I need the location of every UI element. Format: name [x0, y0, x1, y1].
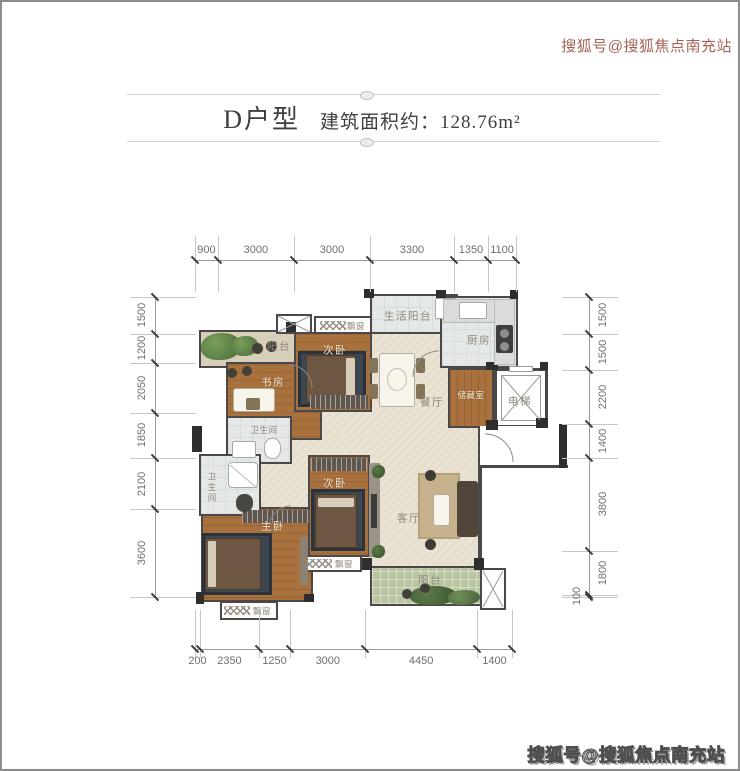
dimension-mark	[195, 649, 512, 650]
pillow-icon	[346, 358, 355, 400]
wardrobe-icon	[311, 458, 367, 471]
dimension-label: 3300	[390, 244, 434, 256]
header-divider-bottom	[127, 141, 660, 142]
dimension-label: 1850	[136, 413, 148, 457]
elevator-door	[509, 366, 533, 372]
header-divider-top	[127, 94, 660, 95]
label-bath1: 卫生间	[250, 424, 277, 436]
dimension-mark	[130, 509, 196, 510]
wall-pier	[304, 594, 314, 602]
dimension-label: 3600	[136, 531, 148, 575]
label-bay-bottom: 飘窗	[253, 605, 271, 617]
label-storage: 储藏室	[457, 389, 484, 401]
ac-platform-box	[480, 568, 506, 610]
dimension-label: 2200	[597, 375, 609, 419]
wall-pier	[536, 418, 548, 428]
wall-pier	[486, 420, 498, 430]
coffee-table-icon	[433, 494, 450, 526]
plant-pot-icon	[227, 368, 237, 378]
dimension-label: 3000	[234, 244, 278, 256]
chair-icon	[369, 384, 378, 399]
toilet-icon	[236, 494, 253, 512]
dimension-mark	[294, 236, 295, 292]
dimension-label: 3000	[306, 655, 350, 667]
wall-pier	[540, 362, 548, 370]
plant-icon	[372, 465, 385, 478]
plant-pot-icon	[252, 343, 263, 354]
wall-pier	[362, 558, 372, 570]
dimension-label: 1250	[253, 655, 297, 667]
label-dining: 餐厅	[420, 395, 444, 410]
label-bay-mid: 飘窗	[335, 558, 353, 570]
dimension-label: 1400	[597, 419, 609, 463]
dimension-mark	[130, 458, 196, 459]
page-title: D户型建筑面积约：128.76m²	[2, 99, 740, 136]
side-table-icon	[425, 539, 436, 550]
dimension-mark	[370, 236, 371, 292]
entry-hall	[480, 426, 568, 468]
wardrobe-icon	[310, 395, 368, 409]
dimension-label: 2050	[136, 366, 148, 410]
label-study: 书房	[261, 375, 285, 390]
plant-icon	[448, 590, 480, 605]
unit-type-label: D户型	[223, 105, 300, 134]
label-living: 客厅	[397, 511, 421, 526]
dimension-label: 900	[184, 244, 228, 256]
label-service-balcony: 生活阳台	[384, 309, 432, 324]
pillow-icon	[208, 541, 216, 587]
label-kitchen: 厨房	[467, 333, 491, 348]
washbasin-icon	[232, 441, 256, 458]
dimension-label: 3800	[597, 482, 609, 526]
wall-pier	[364, 289, 374, 298]
bay-ornament-icon	[306, 559, 332, 568]
label-elevator: 电梯	[508, 394, 532, 409]
wall-pier	[192, 426, 202, 452]
area-label: 建筑面积约：128.76m²	[320, 112, 521, 133]
wall-pier	[559, 424, 567, 468]
label-bay-top: 飘窗	[347, 320, 365, 332]
side-table-icon	[425, 470, 436, 481]
dimension-mark	[155, 297, 156, 597]
dimension-label: 2350	[207, 655, 251, 667]
tv-icon	[371, 494, 377, 528]
chair-icon	[369, 358, 378, 373]
label-bath2: 卫生间	[206, 472, 218, 504]
floorplan-page: D户型建筑面积约：128.76m² 搜狐号@搜狐焦点南充站	[0, 0, 740, 771]
label-balcony-bottom: 阳台	[418, 573, 442, 588]
watermark-bottom-right: 搜狐号@搜狐焦点南充站	[527, 742, 725, 767]
burner-icon	[500, 342, 509, 351]
table-centerpiece-icon	[387, 368, 407, 391]
label-bedroom-mid: 次卧	[323, 476, 347, 491]
chair-icon	[416, 358, 425, 373]
chair-icon	[246, 398, 260, 410]
wall-pier	[474, 558, 484, 570]
dimension-label: 4450	[399, 655, 443, 667]
plant-icon	[372, 545, 385, 558]
label-balcony-top: 阳台	[267, 339, 291, 354]
sink-icon	[459, 302, 487, 319]
wall-pier	[286, 322, 296, 332]
shower-icon	[228, 462, 258, 488]
plant-pot-icon	[402, 589, 412, 599]
dimension-label: 1500	[597, 330, 609, 374]
sofa-icon	[457, 481, 478, 537]
dimension-label: 3000	[310, 244, 354, 256]
plant-pot-icon	[242, 366, 252, 376]
bay-ornament-icon	[224, 606, 250, 615]
burner-icon	[500, 329, 509, 338]
wall-pier	[436, 290, 446, 298]
dimension-label: 1400	[472, 655, 516, 667]
dimension-mark	[195, 260, 516, 261]
bay-ornament-icon	[320, 321, 346, 330]
divider-ellipse-icon	[360, 138, 374, 147]
watermark-top-right: 搜狐号@搜狐焦点南充站	[561, 35, 732, 56]
dimension-mark	[130, 597, 196, 598]
dimension-label: 1800	[597, 551, 609, 595]
toilet-icon	[264, 438, 281, 459]
dimension-label: 1200	[136, 326, 148, 370]
label-master: 主卧	[261, 519, 285, 534]
dimension-label: 100	[571, 574, 583, 618]
pillow-icon	[318, 498, 354, 507]
dimension-label: 1100	[480, 244, 524, 256]
dimension-label: 2100	[136, 462, 148, 506]
label-bedroom-top: 次卧	[323, 343, 347, 358]
